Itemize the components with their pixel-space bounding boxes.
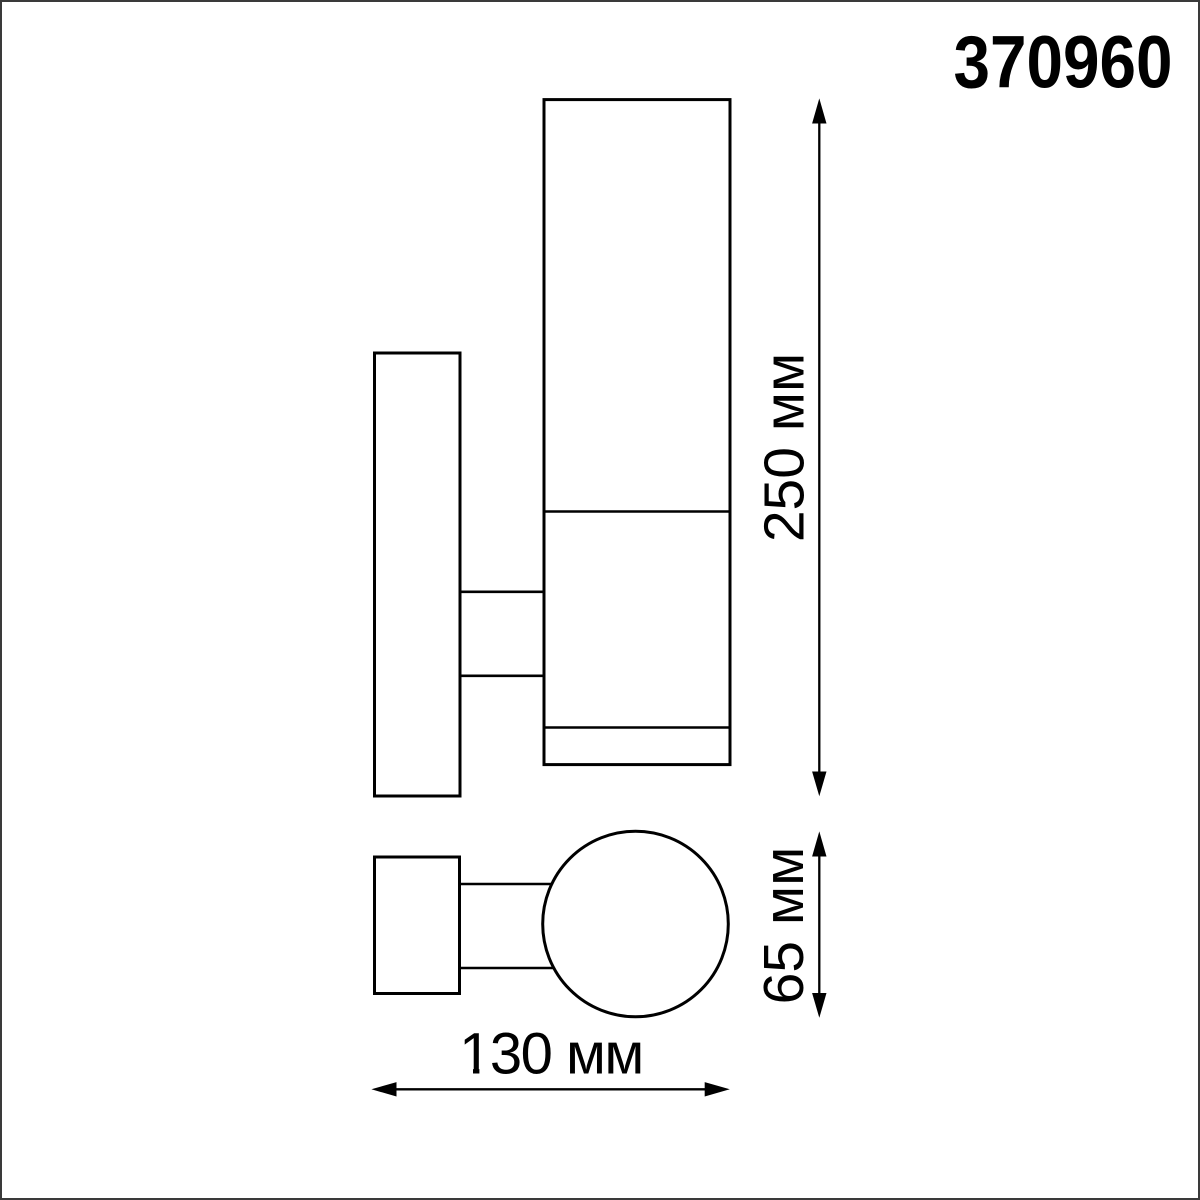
svg-text:65 мм: 65 мм: [752, 847, 816, 1005]
svg-text:250 мм: 250 мм: [753, 353, 817, 542]
svg-text:370960: 370960: [954, 21, 1173, 104]
svg-text:130 мм: 130 мм: [459, 1021, 643, 1086]
